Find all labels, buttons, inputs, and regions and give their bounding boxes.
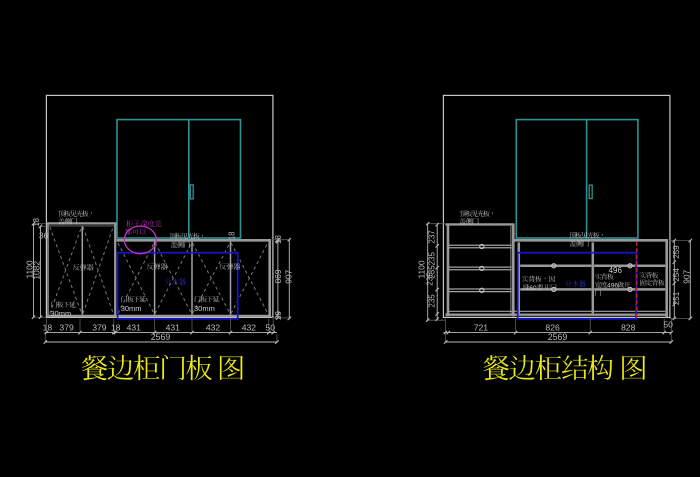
svg-text:828: 828 — [621, 323, 636, 333]
svg-text:30mm: 30mm — [50, 309, 71, 318]
svg-text:235: 235 — [428, 294, 437, 308]
svg-text:379: 379 — [59, 323, 74, 333]
svg-text:379: 379 — [92, 323, 107, 333]
svg-text:907: 907 — [283, 269, 293, 283]
svg-text:2569: 2569 — [548, 332, 568, 342]
svg-text:50: 50 — [663, 320, 673, 330]
svg-text:496: 496 — [607, 282, 618, 289]
svg-text:496: 496 — [609, 266, 623, 275]
svg-text:254: 254 — [672, 268, 681, 282]
svg-text:20: 20 — [274, 311, 283, 320]
svg-text:235: 235 — [426, 272, 435, 286]
svg-text:907: 907 — [681, 269, 691, 283]
svg-text:2569: 2569 — [151, 332, 171, 342]
svg-text:18: 18 — [111, 323, 121, 333]
svg-text:18: 18 — [32, 218, 41, 227]
svg-text:60: 60 — [529, 285, 537, 292]
svg-text:432: 432 — [206, 323, 221, 333]
svg-text:432: 432 — [242, 323, 257, 333]
svg-text:237: 237 — [428, 230, 437, 244]
svg-text:721: 721 — [474, 323, 489, 333]
svg-text:431: 431 — [127, 323, 142, 333]
svg-text:869: 869 — [273, 269, 283, 283]
svg-text:18: 18 — [274, 235, 283, 244]
svg-text:1082: 1082 — [32, 261, 42, 280]
svg-text:251: 251 — [672, 291, 681, 305]
svg-text:30mm: 30mm — [121, 304, 142, 313]
svg-text:18: 18 — [228, 231, 237, 240]
svg-text:259: 259 — [672, 245, 681, 259]
svg-text:30mm: 30mm — [194, 304, 215, 313]
svg-text:36: 36 — [39, 231, 49, 241]
svg-text:235: 235 — [428, 251, 437, 265]
